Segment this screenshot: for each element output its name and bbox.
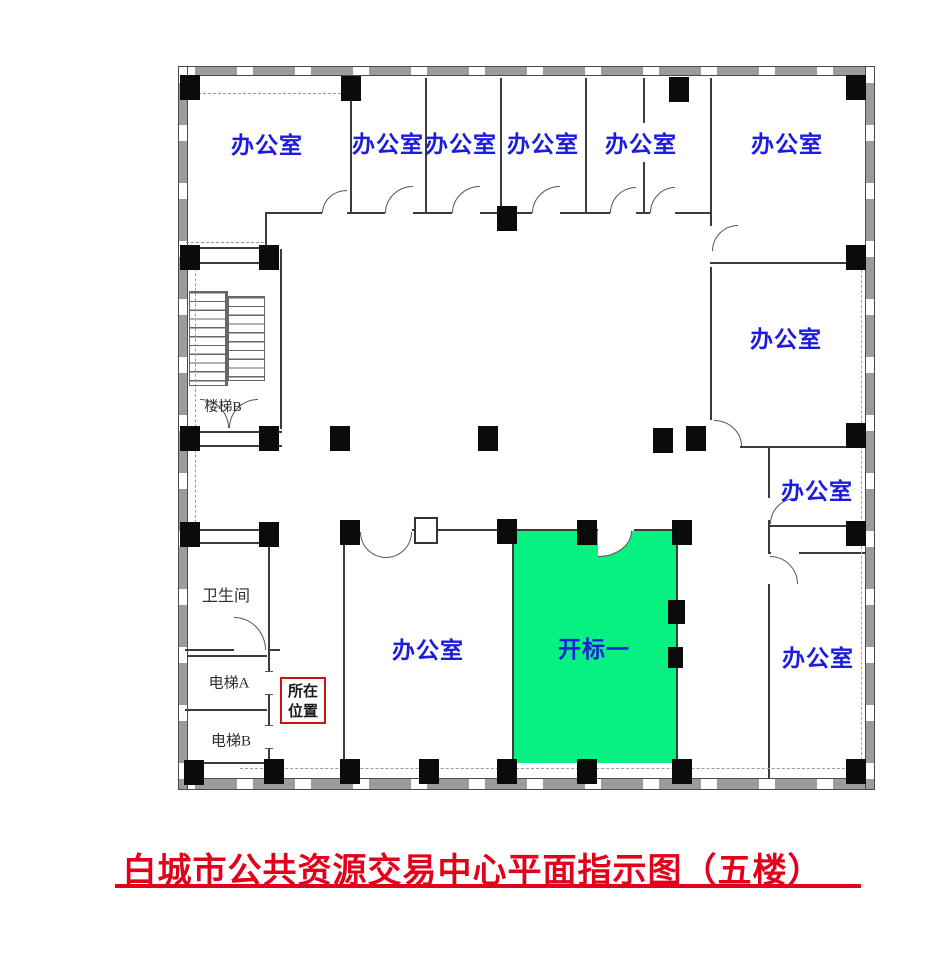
column [668, 600, 685, 624]
column [330, 426, 350, 451]
column [340, 520, 360, 545]
dashed-line [188, 93, 346, 94]
elevator-door [265, 671, 273, 695]
column [672, 520, 692, 545]
door-arc [714, 420, 742, 446]
column [259, 245, 279, 270]
wall [280, 249, 282, 429]
column [478, 426, 498, 451]
column [653, 428, 673, 453]
room-label-right-middle-office: 办公室 [750, 320, 822, 354]
room-label-top-office-4: 办公室 [605, 125, 677, 159]
column [184, 760, 204, 785]
column [340, 759, 360, 784]
wall [500, 78, 502, 213]
outer-wall-top [178, 66, 875, 76]
room-label-bid-opening: 开标一 [558, 630, 630, 664]
column [180, 75, 200, 100]
column [259, 522, 279, 547]
room-label-bottom-center-office: 办公室 [392, 631, 464, 665]
column-outline [414, 517, 438, 544]
wall [512, 530, 514, 763]
column [686, 426, 706, 451]
elevator-door [265, 725, 273, 749]
wall [710, 267, 712, 420]
column [846, 75, 866, 100]
column [497, 519, 517, 544]
room-label-right-bottom-office: 办公室 [782, 639, 854, 673]
column [672, 759, 692, 784]
door-arc [385, 186, 413, 213]
wall [710, 262, 866, 264]
wall [585, 78, 587, 213]
column [668, 647, 683, 668]
dashed-line [240, 768, 855, 769]
column [669, 77, 689, 102]
wall [768, 520, 770, 553]
floor-plan-canvas: 办公室 办公室 办公室 办公室 办公室 办公室 办公室 办公室 办公室 办公室 … [0, 0, 945, 966]
column [419, 759, 439, 784]
column [846, 245, 866, 270]
room-label-right-small-office: 办公室 [781, 472, 853, 506]
wall [710, 78, 712, 226]
column [180, 426, 200, 451]
column [846, 759, 866, 784]
wall [643, 78, 645, 123]
outer-wall-right [865, 66, 875, 790]
room-label-stairs-b: 楼梯B [204, 396, 241, 416]
door-arc [360, 532, 386, 558]
column [497, 206, 517, 231]
column [846, 521, 866, 546]
door-arc [610, 187, 636, 213]
wall [185, 709, 267, 711]
wall [768, 448, 770, 498]
column [497, 759, 517, 784]
room-label-top-right-office: 办公室 [751, 125, 823, 159]
dashed-line [186, 242, 264, 243]
current-location-line2: 位置 [282, 702, 324, 722]
column [259, 426, 279, 451]
current-location-line1: 所在 [282, 682, 324, 702]
door-arc [532, 186, 560, 213]
staircase [228, 296, 265, 381]
dashed-line [195, 268, 196, 523]
door-arc [712, 225, 738, 251]
current-location-marker: 所在 位置 [280, 677, 326, 724]
column [264, 759, 284, 784]
wall [187, 655, 267, 657]
dashed-line [861, 270, 862, 760]
column [577, 759, 597, 784]
room-label-top-office-3: 办公室 [507, 125, 579, 159]
wall [343, 530, 345, 763]
door-arc [452, 186, 480, 213]
door-arc [770, 556, 798, 584]
column [577, 520, 597, 545]
column [846, 423, 866, 448]
door-arc [386, 532, 412, 558]
stair-rail [226, 291, 228, 386]
door-arc [234, 617, 266, 650]
column [180, 522, 200, 547]
room-label-elevator-b: 电梯B [211, 730, 251, 751]
column [180, 245, 200, 270]
wall [768, 584, 770, 778]
room-label-elevator-a: 电梯A [209, 672, 250, 693]
door-opening [771, 551, 799, 555]
room-label-top-left-office: 办公室 [231, 126, 303, 160]
wall [643, 162, 645, 213]
room-label-restroom: 卫生间 [202, 582, 250, 606]
title-underline [115, 884, 861, 888]
column [341, 76, 361, 101]
door-arc [650, 187, 675, 213]
door-arc [322, 190, 347, 213]
room-label-top-office-2: 办公室 [425, 125, 497, 159]
room-label-top-office-1: 办公室 [352, 125, 424, 159]
